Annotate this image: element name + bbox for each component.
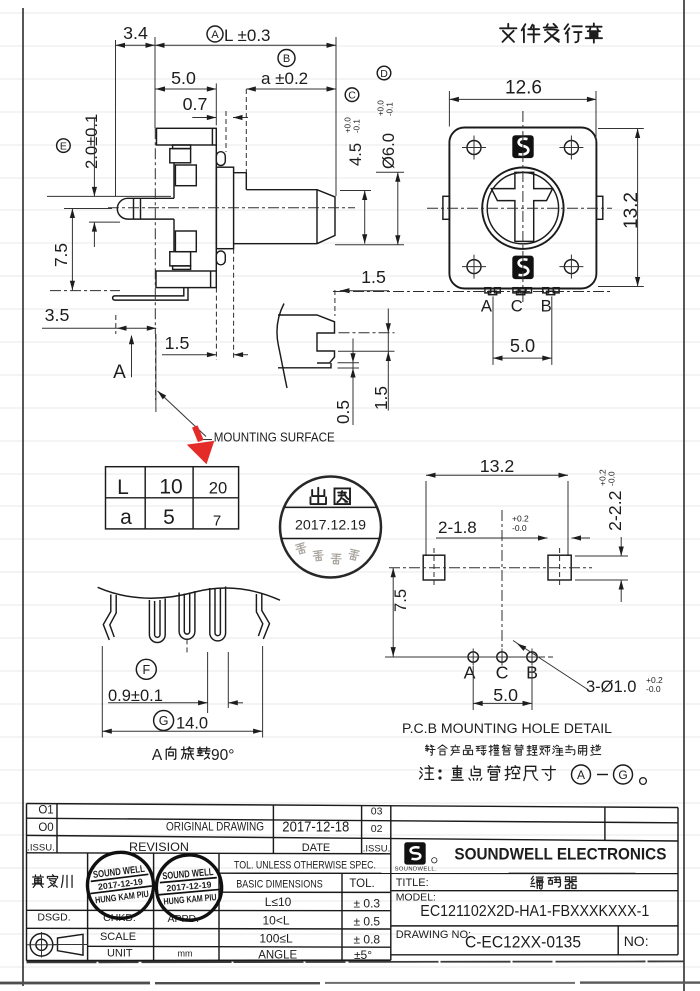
svg-text:G: G xyxy=(618,768,627,782)
svg-text:O1: O1 xyxy=(38,805,53,817)
svg-text:A: A xyxy=(577,768,585,782)
svg-text:A: A xyxy=(152,747,163,764)
svg-text:3-Ø1.0: 3-Ø1.0 xyxy=(586,678,636,696)
svg-text:Ø6.0: Ø6.0 xyxy=(379,133,398,169)
svg-text:5.0: 5.0 xyxy=(171,68,196,88)
svg-text:A: A xyxy=(464,663,476,683)
svg-text:-0.0: -0.0 xyxy=(646,684,661,694)
svg-text:L≤10: L≤10 xyxy=(265,895,292,909)
svg-text:7: 7 xyxy=(213,513,221,530)
svg-text:.ISSU.: .ISSU. xyxy=(27,843,54,854)
svg-text:20: 20 xyxy=(209,479,227,498)
svg-text:1.5: 1.5 xyxy=(361,267,386,287)
svg-text:SCALE: SCALE xyxy=(100,931,136,943)
svg-text:MODEL:: MODEL: xyxy=(396,892,436,904)
svg-text:-0.0: -0.0 xyxy=(607,471,617,486)
svg-text:7.5: 7.5 xyxy=(51,243,71,267)
svg-text:±5°: ±5° xyxy=(354,948,372,962)
svg-text:B: B xyxy=(541,297,552,316)
svg-text:B: B xyxy=(283,53,290,65)
svg-text:a ±0.2: a ±0.2 xyxy=(261,69,308,88)
svg-text:02: 02 xyxy=(371,823,383,835)
svg-text:2017-12-18: 2017-12-18 xyxy=(282,820,349,836)
svg-text:12.6: 12.6 xyxy=(505,78,542,99)
svg-text:TOL. UNLESS OTHERWISE SPEC.: TOL. UNLESS OTHERWISE SPEC. xyxy=(234,860,376,872)
svg-text:4.5: 4.5 xyxy=(346,143,365,166)
svg-text:C: C xyxy=(496,663,509,683)
svg-text:DATE: DATE xyxy=(302,842,331,854)
svg-text:E: E xyxy=(60,140,67,152)
svg-text:5.0: 5.0 xyxy=(510,336,535,356)
svg-text:13.2: 13.2 xyxy=(480,456,515,476)
svg-text:+0.2: +0.2 xyxy=(512,514,529,524)
svg-text:P.C.B MOUNTING HOLE DETAIL: P.C.B MOUNTING HOLE DETAIL xyxy=(402,721,613,736)
svg-text:90°: 90° xyxy=(211,747,234,764)
svg-text:REVISION: REVISION xyxy=(129,842,189,854)
svg-text:14.0: 14.0 xyxy=(176,715,208,733)
svg-text:± 0.5: ± 0.5 xyxy=(353,915,380,929)
svg-text:A: A xyxy=(113,362,126,383)
svg-text:7.5: 7.5 xyxy=(391,589,410,612)
svg-text:UNIT: UNIT xyxy=(107,948,133,960)
svg-text:2-2.2: 2-2.2 xyxy=(605,490,625,531)
svg-text:ORIGINAL DRAWING: ORIGINAL DRAWING xyxy=(166,820,264,834)
svg-text:BASIC DIMENSIONS: BASIC DIMENSIONS xyxy=(236,879,323,891)
svg-text:5: 5 xyxy=(163,506,175,529)
svg-text:0.7: 0.7 xyxy=(183,94,208,114)
svg-text:5.0: 5.0 xyxy=(493,685,518,705)
svg-text:C: C xyxy=(511,297,523,316)
svg-text:0.5: 0.5 xyxy=(333,400,353,424)
svg-text:TITLE:: TITLE: xyxy=(396,877,429,889)
svg-text:TOL.: TOL. xyxy=(349,878,374,890)
svg-text:DSGD.: DSGD. xyxy=(37,912,70,924)
svg-text:NO:: NO: xyxy=(624,933,649,949)
svg-text:L: L xyxy=(117,476,129,499)
svg-text:A: A xyxy=(211,29,219,41)
svg-text:O0: O0 xyxy=(38,822,53,834)
svg-text:1.5: 1.5 xyxy=(165,333,190,353)
svg-text:MOUNTING SURFACE: MOUNTING SURFACE xyxy=(214,431,335,445)
svg-text:03: 03 xyxy=(371,806,383,818)
svg-text:A: A xyxy=(481,297,493,316)
svg-text:mm: mm xyxy=(178,949,193,959)
svg-text:± 0.3: ± 0.3 xyxy=(353,897,380,911)
svg-text:10: 10 xyxy=(159,476,182,499)
svg-text:L ±0.3: L ±0.3 xyxy=(224,26,271,45)
svg-text:D: D xyxy=(380,68,388,80)
svg-text:-0.0: -0.0 xyxy=(512,523,527,533)
svg-text:C-EC12XX-0135: C-EC12XX-0135 xyxy=(465,934,581,952)
svg-text:SOUNDWELL ELECTRONICS: SOUNDWELL ELECTRONICS xyxy=(454,846,666,864)
svg-text:+0.0: +0.0 xyxy=(344,117,353,133)
svg-text:100≤L: 100≤L xyxy=(259,932,293,946)
svg-text:EC121102X2D-HA1-FBXXXKXXX-1: EC121102X2D-HA1-FBXXXKXXX-1 xyxy=(420,903,649,920)
svg-text:DRAWING NO:: DRAWING NO: xyxy=(396,929,471,941)
svg-text:G: G xyxy=(159,714,169,728)
svg-text:3.5: 3.5 xyxy=(45,305,70,325)
svg-text:3.4: 3.4 xyxy=(123,23,148,43)
svg-text:.ISSU.: .ISSU. xyxy=(363,844,390,855)
svg-text:2017.12.19: 2017.12.19 xyxy=(295,518,366,534)
svg-text:10<L: 10<L xyxy=(262,914,289,928)
svg-text:F: F xyxy=(142,663,150,677)
svg-text:ANGLE: ANGLE xyxy=(258,950,297,962)
svg-text:SOUNDWELL.: SOUNDWELL. xyxy=(395,866,437,872)
svg-text:2.0±0.1: 2.0±0.1 xyxy=(82,114,101,169)
svg-text:13.2: 13.2 xyxy=(621,192,642,229)
svg-text:-0.1: -0.1 xyxy=(386,102,395,116)
svg-text:+0.0: +0.0 xyxy=(377,100,386,116)
svg-text:-0.1: -0.1 xyxy=(353,119,362,133)
svg-text:C: C xyxy=(348,89,356,101)
svg-text:± 0.8: ± 0.8 xyxy=(353,933,380,947)
svg-text:2-1.8: 2-1.8 xyxy=(438,518,477,537)
svg-text:1.5: 1.5 xyxy=(371,386,391,410)
svg-text:a: a xyxy=(120,506,132,529)
